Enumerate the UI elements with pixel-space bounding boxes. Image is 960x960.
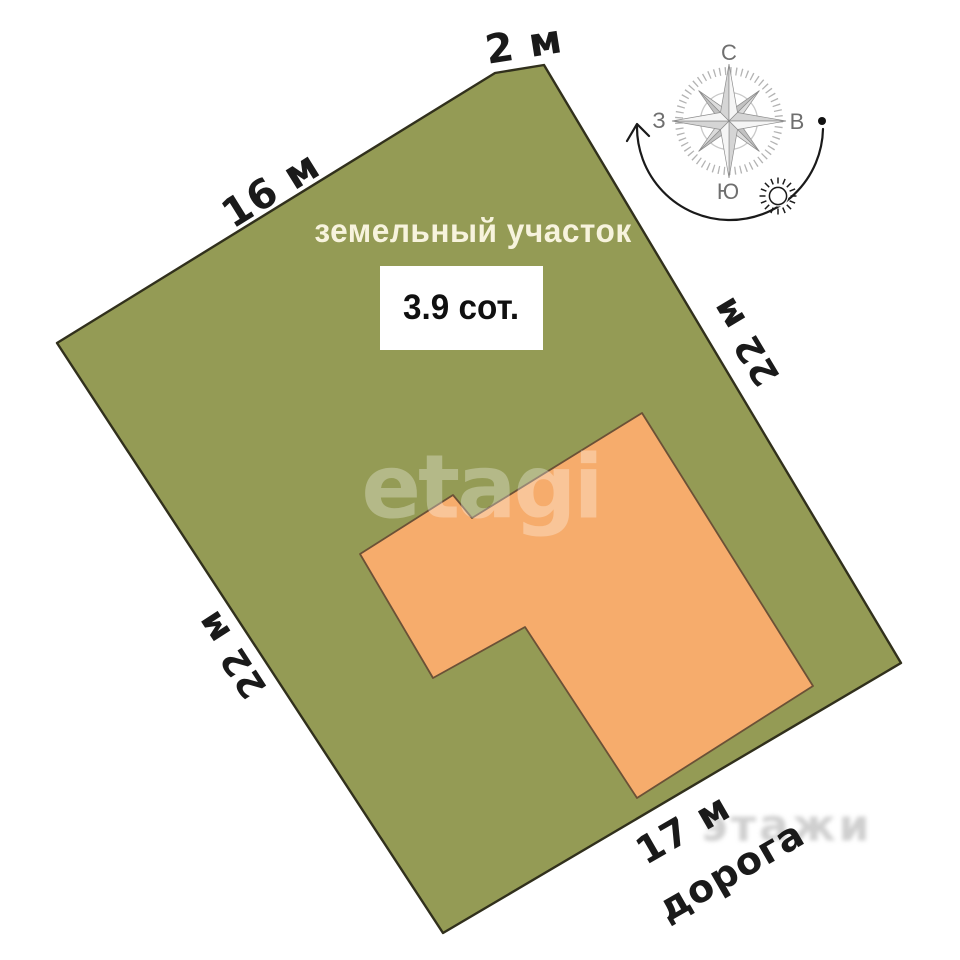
compass-east-label: В bbox=[790, 109, 805, 135]
compass-west-label: З bbox=[652, 108, 665, 134]
watermark-etagi: etagi bbox=[361, 436, 600, 539]
arc-end-dot bbox=[818, 117, 826, 125]
area-value: 3.9 сот. bbox=[403, 288, 519, 328]
land-plot-diagram: etagi этажи земельный участок 3.9 сот. 2… bbox=[0, 0, 960, 960]
sun-icon bbox=[760, 178, 797, 215]
compass-north-label: С bbox=[721, 40, 737, 66]
compass-south-label: Ю bbox=[717, 179, 739, 205]
plot-title: земельный участок bbox=[314, 212, 631, 250]
area-box: 3.9 сот. bbox=[380, 266, 543, 350]
compass-rose-icon bbox=[672, 64, 786, 178]
compass-cardinal-points bbox=[672, 64, 786, 178]
